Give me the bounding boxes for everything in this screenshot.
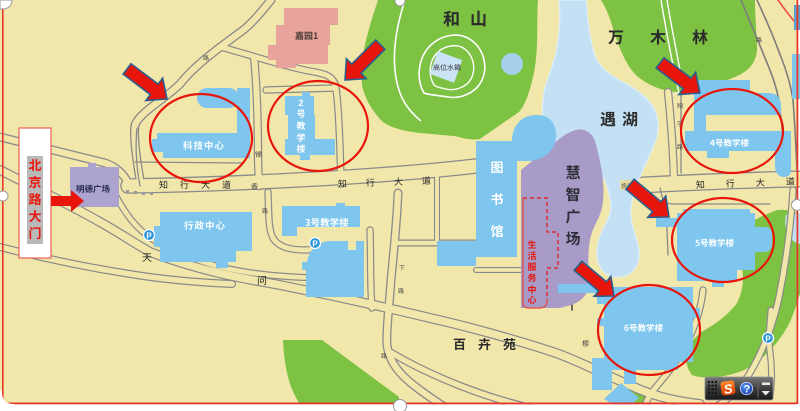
- svg-text:P: P: [146, 232, 152, 241]
- svg-text:P: P: [765, 335, 771, 344]
- svg-text:?: ?: [744, 384, 751, 396]
- svg-text:P: P: [312, 240, 318, 249]
- svg-text:2: 2: [298, 98, 303, 108]
